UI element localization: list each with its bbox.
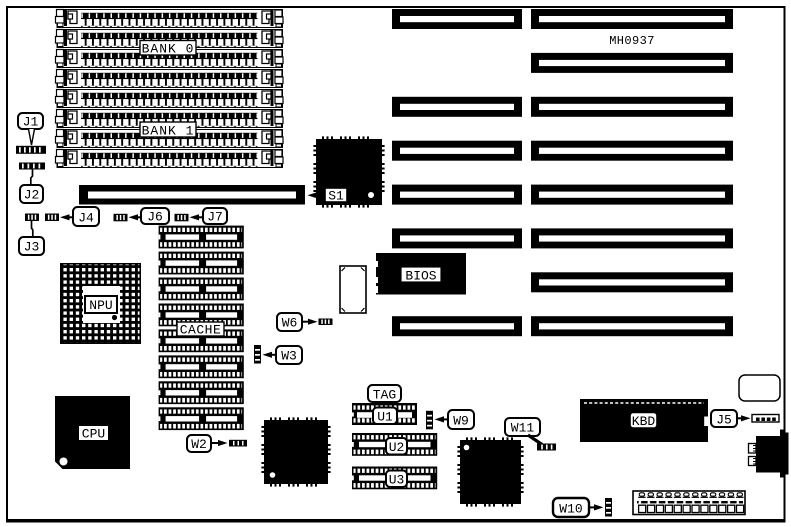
svg-text:U1: U1 [377, 410, 393, 425]
svg-text:J6: J6 [147, 210, 163, 225]
svg-text:BANK 1: BANK 1 [142, 124, 195, 139]
svg-text:U3: U3 [389, 473, 405, 488]
svg-text:BIOS: BIOS [405, 269, 436, 284]
svg-text:J2: J2 [24, 188, 40, 203]
svg-text:W11: W11 [511, 421, 535, 436]
svg-text:W10: W10 [559, 501, 582, 516]
svg-text:W6: W6 [282, 316, 298, 331]
svg-text:W2: W2 [191, 437, 207, 452]
svg-text:CPU: CPU [82, 427, 105, 442]
svg-text:J7: J7 [207, 210, 223, 225]
svg-text:NPU: NPU [89, 298, 112, 313]
svg-text:CACHE: CACHE [180, 323, 222, 338]
svg-text:J1: J1 [23, 115, 39, 130]
svg-text:J5: J5 [716, 412, 732, 427]
svg-text:S1: S1 [328, 189, 344, 204]
svg-text:J3: J3 [24, 240, 40, 255]
svg-text:TAG: TAG [373, 387, 396, 402]
svg-text:KBD: KBD [632, 414, 656, 429]
svg-text:J4: J4 [78, 210, 94, 225]
svg-text:W3: W3 [281, 349, 297, 364]
svg-text:MH0937: MH0937 [609, 34, 655, 48]
svg-text:U2: U2 [389, 440, 405, 455]
svg-text:BANK 0: BANK 0 [142, 42, 195, 57]
svg-text:W9: W9 [453, 413, 469, 428]
